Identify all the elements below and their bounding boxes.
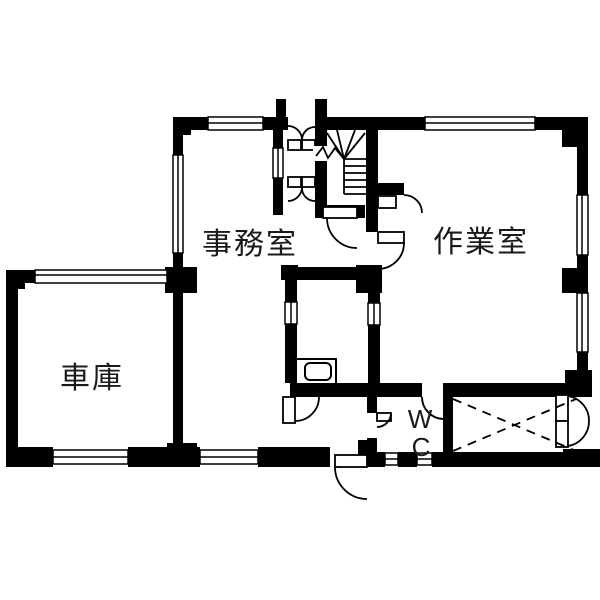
workshop-label: 作業室 [433,226,529,259]
floor-plan: 事務室 作業室 車庫 W C [0,0,600,600]
window [273,148,283,178]
window [425,117,535,130]
floor-plan-drawing: 事務室 作業室 車庫 W C [0,0,600,600]
entrance-double-door [288,126,315,201]
wc-label-line2: C [412,432,431,462]
void-room-double-door [556,395,589,447]
garage-label: 車庫 [60,362,124,395]
window [35,270,167,283]
wc-side-door [377,413,391,427]
window [368,303,380,325]
window [285,302,297,324]
washbasin [296,359,336,384]
wc-label-line1: W [408,404,433,434]
window [53,450,128,464]
window [577,293,588,352]
workshop-door [378,232,404,269]
windows [35,117,588,465]
understair-door [378,195,422,213]
window [577,195,588,255]
doors [283,126,589,499]
office-label: 事務室 [202,228,298,261]
window [200,450,258,464]
window [208,117,263,130]
stair-landing-door [323,207,357,248]
window [173,155,183,253]
window [385,453,398,465]
washroom-door [283,397,319,423]
exterior-door [335,455,367,499]
